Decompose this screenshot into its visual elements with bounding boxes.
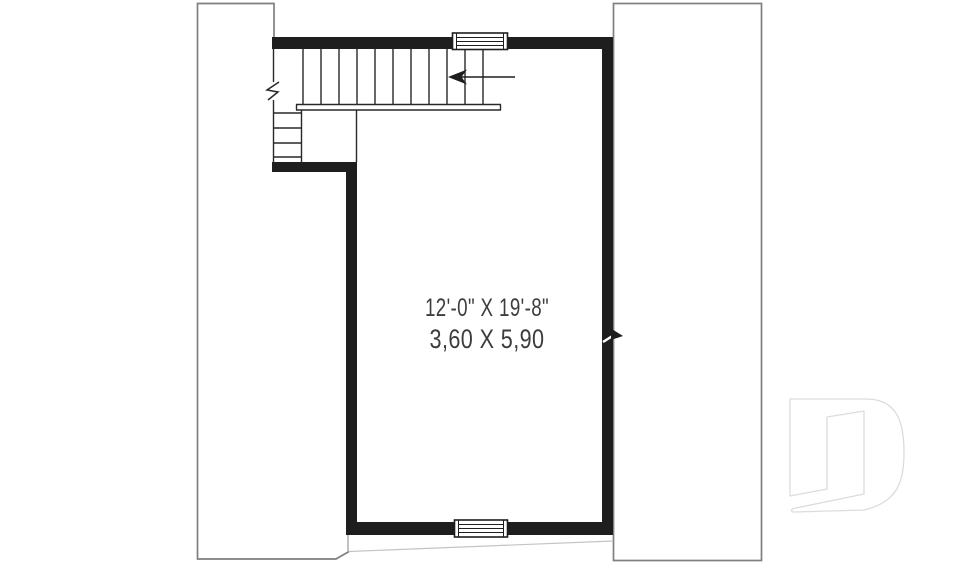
break-tick [611,329,623,341]
roof-outline-left-path [198,4,350,560]
d-logo-watermark-icon [790,399,904,512]
wall-right [602,37,613,535]
exterior-walls [272,37,613,535]
roof-outline-right-rect [614,4,762,561]
wall-top [272,37,613,49]
stair-direction-arrow-icon [448,70,515,85]
floor-plan: 12'-0" X 19'-8" 3,60 X 5,90 [0,0,960,569]
wall-room-left [346,162,357,535]
bottom-wall-window-icon [455,520,508,537]
stair-treads-winder [274,113,301,157]
roof-outline-left [198,4,350,560]
d-logo-outline [790,399,904,512]
roof-outline-right [614,4,762,561]
break-zigzag [267,82,279,100]
stair-stringer [296,105,501,111]
room-dimension-metric: 3,60 X 5,90 [383,324,591,355]
room-dimension-imperial: 12'-0" X 19'-8" [390,294,585,323]
wall-stair-bottom [272,162,357,172]
stair-landing [302,110,357,162]
roof-valley-line [349,541,613,552]
floor-plan-drawing [0,0,960,569]
left-wall-break-mark-icon [267,82,279,100]
staircase [274,49,502,162]
top-wall-window-icon [453,33,508,50]
